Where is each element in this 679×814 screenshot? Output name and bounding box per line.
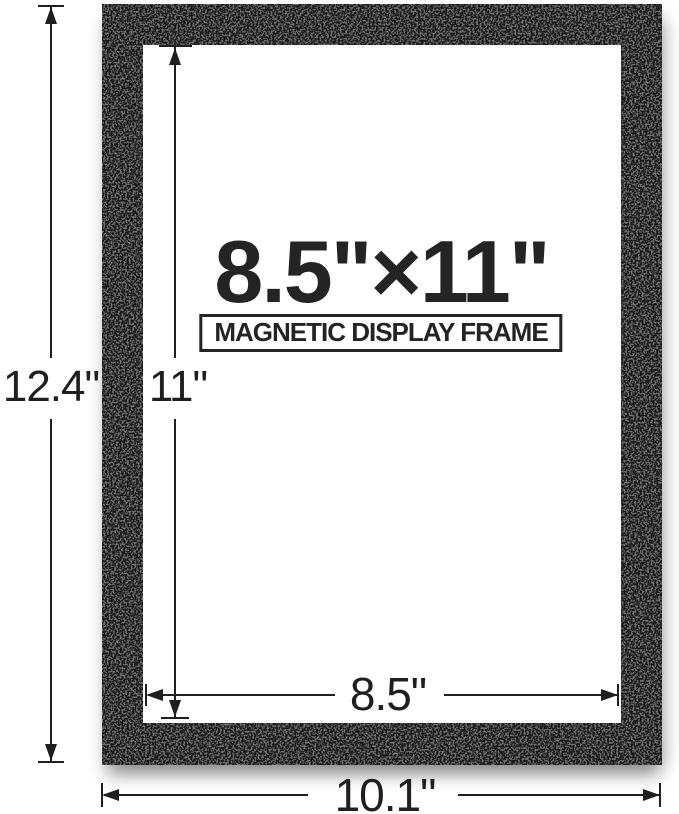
outer-width-line-right	[458, 794, 659, 796]
outer-height-line-lower	[50, 419, 52, 761]
frame-opening	[143, 45, 621, 723]
opening-height-cap-bottom	[161, 717, 189, 719]
opening-width-line-left	[148, 694, 335, 696]
opening-width-line-right	[444, 694, 617, 696]
opening-height-label: 11"	[146, 365, 210, 409]
outer-width-tick-right	[659, 783, 661, 807]
arrow-right-icon	[643, 789, 660, 801]
outer-width-line-left	[104, 794, 308, 796]
opening-width-tick-right	[617, 684, 619, 706]
outer-height-line-upper	[50, 7, 52, 358]
outer-width-label: 10.1"	[327, 772, 443, 814]
arrow-right-icon	[601, 689, 618, 701]
product-image-canvas: 8.5"×11" MAGNETIC DISPLAY FRAME 12.4" 11…	[0, 0, 679, 814]
outer-height-cap-bottom	[38, 761, 64, 763]
arrow-down-icon	[169, 700, 181, 717]
size-title: 8.5"×11"	[143, 228, 620, 316]
outer-height-label: 12.4"	[0, 365, 104, 409]
opening-height-line-upper	[174, 47, 176, 358]
magnetic-display-frame-badge: MAGNETIC DISPLAY FRAME	[199, 314, 562, 352]
opening-width-label: 8.5"	[340, 671, 436, 717]
opening-height-line-lower	[174, 419, 176, 717]
arrow-down-icon	[45, 744, 57, 761]
